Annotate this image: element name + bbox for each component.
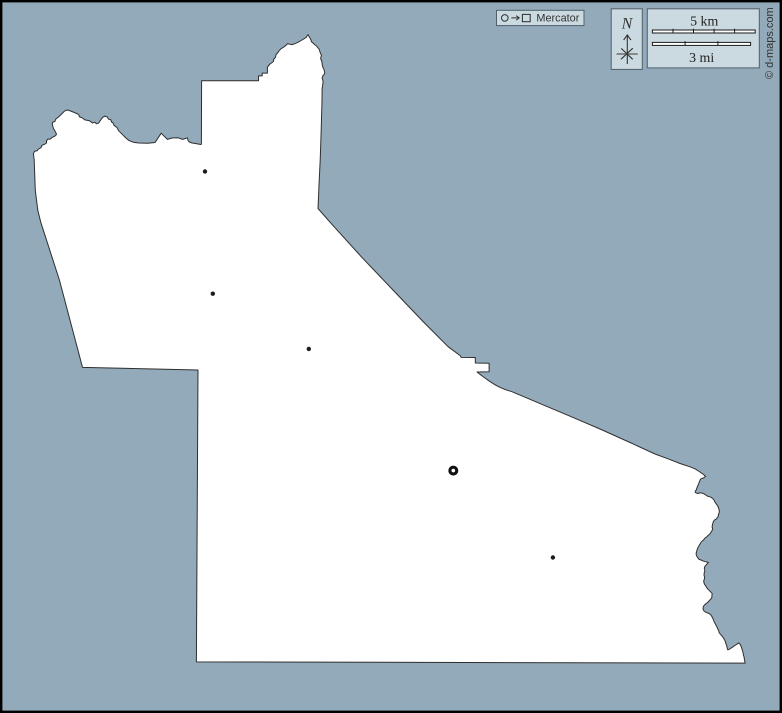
svg-text:5 km: 5 km	[690, 15, 718, 30]
svg-text:Mercator: Mercator	[536, 13, 579, 25]
svg-text:© d-maps.com: © d-maps.com	[764, 7, 776, 79]
svg-text:N: N	[621, 16, 634, 33]
svg-text:3 mi: 3 mi	[689, 51, 714, 66]
